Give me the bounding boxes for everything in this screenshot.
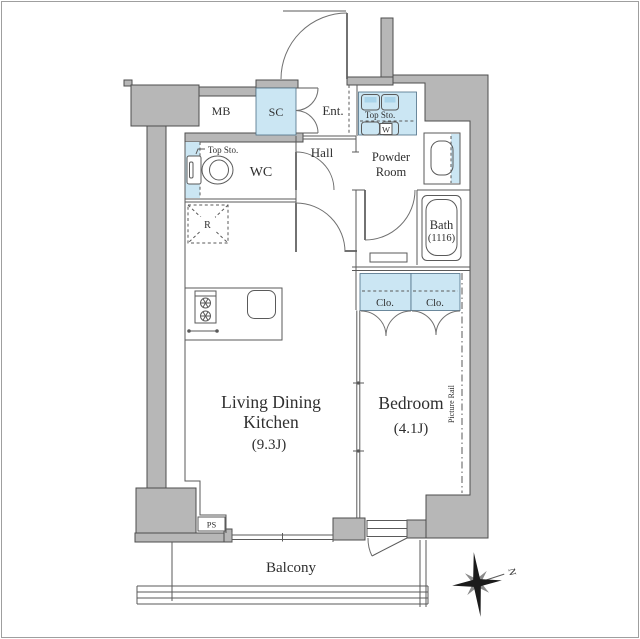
wall-top-mb	[199, 87, 256, 96]
kitchen-sink-icon	[248, 291, 276, 319]
compass-north-label: N	[505, 567, 517, 576]
wall-top-sc	[256, 80, 298, 88]
room-label-powder-1: Powder	[372, 150, 411, 164]
label-bedroom-size: (4.1J)	[394, 421, 429, 437]
label-washer: W	[382, 125, 390, 135]
fridge-label: R	[204, 220, 211, 231]
room-label-ldk-2: Kitchen	[243, 412, 299, 432]
sc-door-arcs	[296, 88, 318, 133]
label-wc-top-storage: Top Sto.	[208, 145, 238, 155]
balcony-door-leaf	[372, 538, 407, 556]
room-label-wc: WC	[250, 165, 273, 180]
wall-top-right-of-door	[347, 77, 393, 85]
wall-bottom-strip	[135, 533, 232, 542]
partition-dot-2	[357, 449, 360, 452]
floor-plan: R	[0, 0, 640, 639]
label-bath-dim: (1116)	[428, 233, 456, 244]
room-label-powder-2: Room	[376, 165, 407, 179]
stove-burner-1	[201, 298, 211, 308]
wall-pillar-top-left	[131, 85, 199, 126]
label-picture-rail: Picture Rail	[447, 384, 456, 423]
image-border	[2, 2, 639, 638]
bath-door-arc	[365, 190, 415, 240]
cabinet-handle-1	[365, 97, 377, 103]
label-closet-2: Clo.	[426, 298, 444, 309]
balcony-railing	[137, 586, 428, 604]
vanity-basin	[431, 141, 453, 175]
partition-ticks	[353, 383, 364, 451]
closet-left-bifold	[361, 311, 411, 336]
closet-right-bifold	[412, 311, 460, 335]
wall-left-column	[147, 126, 166, 488]
wall-bottom-left-block	[136, 488, 196, 533]
room-label-balcony: Balcony	[266, 560, 316, 576]
vanity-storage-strip	[451, 134, 460, 183]
room-label-ent: Ent.	[322, 103, 343, 118]
entry-step	[303, 136, 356, 139]
toilet-icon	[187, 156, 233, 184]
compass-main-star	[449, 550, 506, 620]
label-closet-1: Clo.	[376, 298, 394, 309]
room-label-ldk-1: Living Dining	[221, 392, 321, 412]
ldk-window-mullions	[232, 532, 333, 542]
kitchen-icons	[185, 288, 282, 340]
dim-dot-1	[187, 329, 191, 333]
room-label-sc: SC	[269, 105, 284, 119]
label-ldk-size: (9.3J)	[252, 437, 287, 453]
label-powder-top-storage: Top Sto.	[365, 110, 395, 120]
ldk-door-arc	[296, 203, 345, 252]
dim-dot-2	[215, 329, 219, 333]
balcony-right-wall	[420, 540, 426, 607]
balcony-door-arc	[368, 538, 372, 556]
wall-sill-center	[333, 518, 365, 540]
room-label-hall: Hall	[311, 145, 334, 160]
powder-door-jambs	[352, 152, 359, 190]
bath-step	[370, 253, 407, 262]
stove-burner-2	[201, 311, 211, 321]
wall-corridor-band	[381, 18, 393, 77]
closet-top-wall	[352, 267, 470, 271]
partition-dot-1	[357, 381, 360, 384]
wc-bottom-wall	[185, 199, 296, 202]
entrance-door-arc	[281, 13, 347, 79]
sliding-partition	[357, 311, 360, 519]
refrigerator-space: R	[188, 205, 228, 243]
cabinet-handle-2	[385, 97, 396, 103]
room-label-bath: Bath	[430, 218, 454, 232]
ldk-left-outline	[185, 142, 226, 533]
room-label-mb: MB	[212, 104, 231, 118]
wall-sill-right	[407, 520, 426, 538]
compass-icon: N	[449, 548, 522, 620]
room-label-bedroom: Bedroom	[378, 393, 444, 413]
label-ps: PS	[207, 520, 217, 530]
